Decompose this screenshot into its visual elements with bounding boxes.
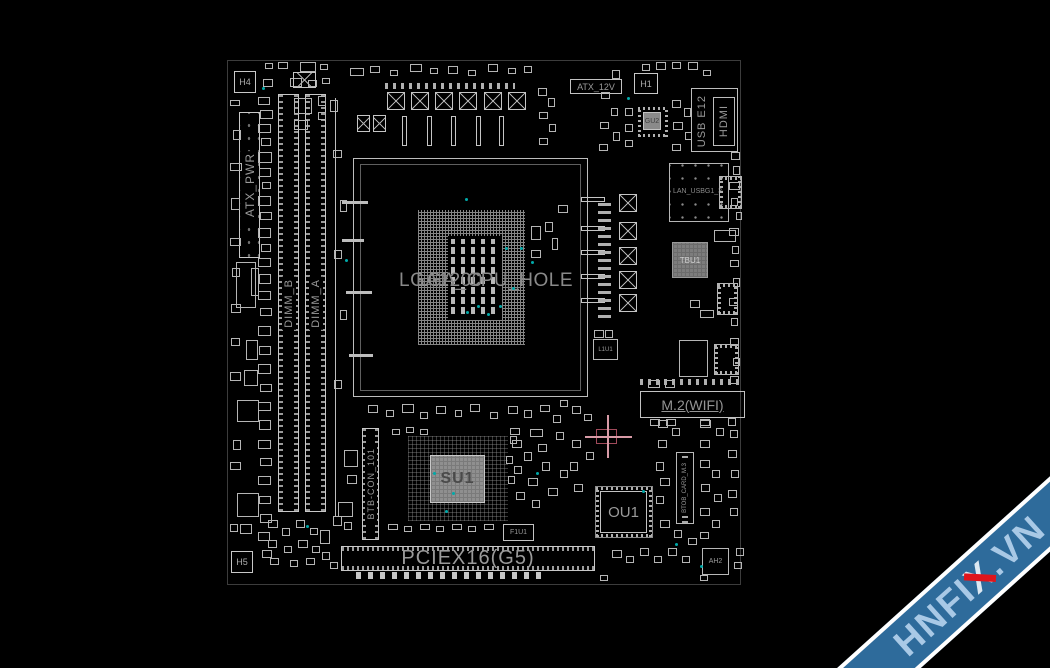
dimm-a-label: DIMM_A bbox=[309, 277, 323, 330]
dimm-b-label: DIMM_B bbox=[282, 277, 296, 330]
pciex16-solder-pads bbox=[356, 572, 548, 579]
m2-wifi-label: M.2(WIFI) bbox=[661, 397, 723, 413]
lan-label: LAN_USBG1_3 bbox=[673, 188, 722, 195]
chip-l1u1[interactable]: L1U1 bbox=[593, 339, 618, 360]
hole-h5-label: H5 bbox=[236, 557, 248, 567]
mounting-hole-h4[interactable]: H4 bbox=[234, 71, 256, 93]
hdmi-port[interactable]: HDMI bbox=[713, 97, 735, 146]
chip-f1u1[interactable]: F1U1 bbox=[503, 524, 534, 541]
dimm-slot-b[interactable]: DIMM_B bbox=[278, 94, 299, 512]
chip-tbu1-label: TBU1 bbox=[680, 256, 700, 265]
component-ah2[interactable]: AH2 bbox=[702, 548, 729, 575]
chip-l1u1-label: L1U1 bbox=[598, 347, 612, 353]
pciex16-slot[interactable]: PCIEX16(G5) bbox=[341, 546, 595, 571]
atx-12v-label: ATX_12V bbox=[577, 82, 615, 92]
btb-con-101-label: BTB-CON_101 bbox=[365, 446, 377, 522]
hole-h1-label: H1 bbox=[640, 79, 652, 89]
atx-power-connector[interactable]: ATX_PWR bbox=[239, 112, 260, 258]
dimm-slot-a[interactable]: DIMM_A bbox=[305, 94, 326, 512]
m2-wifi-slot[interactable]: M.2(WIFI) bbox=[640, 391, 745, 418]
chip-su1[interactable]: SU1 bbox=[430, 455, 485, 503]
hdmi-label: HDMI bbox=[718, 105, 730, 137]
pciex16-label: PCIEX16(G5) bbox=[401, 547, 534, 570]
btob-card-label: BTOB_CARD_M.3 bbox=[681, 461, 689, 515]
chip-tbu1[interactable]: TBU1 bbox=[672, 242, 708, 278]
atx-power-label: ATX_PWR bbox=[242, 151, 258, 219]
chip-ou1-label: OU1 bbox=[608, 504, 639, 521]
mounting-hole-h1[interactable]: H1 bbox=[634, 73, 658, 94]
usb-e12-label: USB E12 bbox=[696, 95, 708, 147]
chip-su1-label: SU1 bbox=[440, 470, 474, 488]
component-ah2-label: AH2 bbox=[709, 558, 723, 565]
atx-12v-connector[interactable]: ATX_12V bbox=[570, 79, 622, 94]
watermark-ribbon: HNFIX.VN bbox=[825, 451, 1050, 668]
boardview-canvas[interactable]: H4 H1 H5 ATX_PWR DIMM_B DIMM_A ATX_12V L… bbox=[0, 0, 1050, 668]
highlighted-component[interactable] bbox=[596, 429, 617, 444]
chip-gu2[interactable]: GU2 bbox=[638, 107, 668, 137]
chip-gu2-label: GU2 bbox=[643, 112, 661, 130]
hole-h4-label: H4 bbox=[239, 77, 251, 87]
chip-f1u1-label: F1U1 bbox=[510, 529, 527, 536]
mounting-hole-h5[interactable]: H5 bbox=[231, 551, 253, 573]
btb-con-101-connector[interactable]: BTB-CON_101 bbox=[362, 428, 379, 540]
chip-ou1[interactable]: OU1 bbox=[600, 491, 647, 533]
socket-label-cpu-hole: LGA_CPU_HOLE bbox=[416, 270, 573, 292]
btob-card-connector[interactable]: BTOB_CARD_M.3 bbox=[676, 452, 694, 524]
lan-connector-tab bbox=[719, 176, 742, 209]
